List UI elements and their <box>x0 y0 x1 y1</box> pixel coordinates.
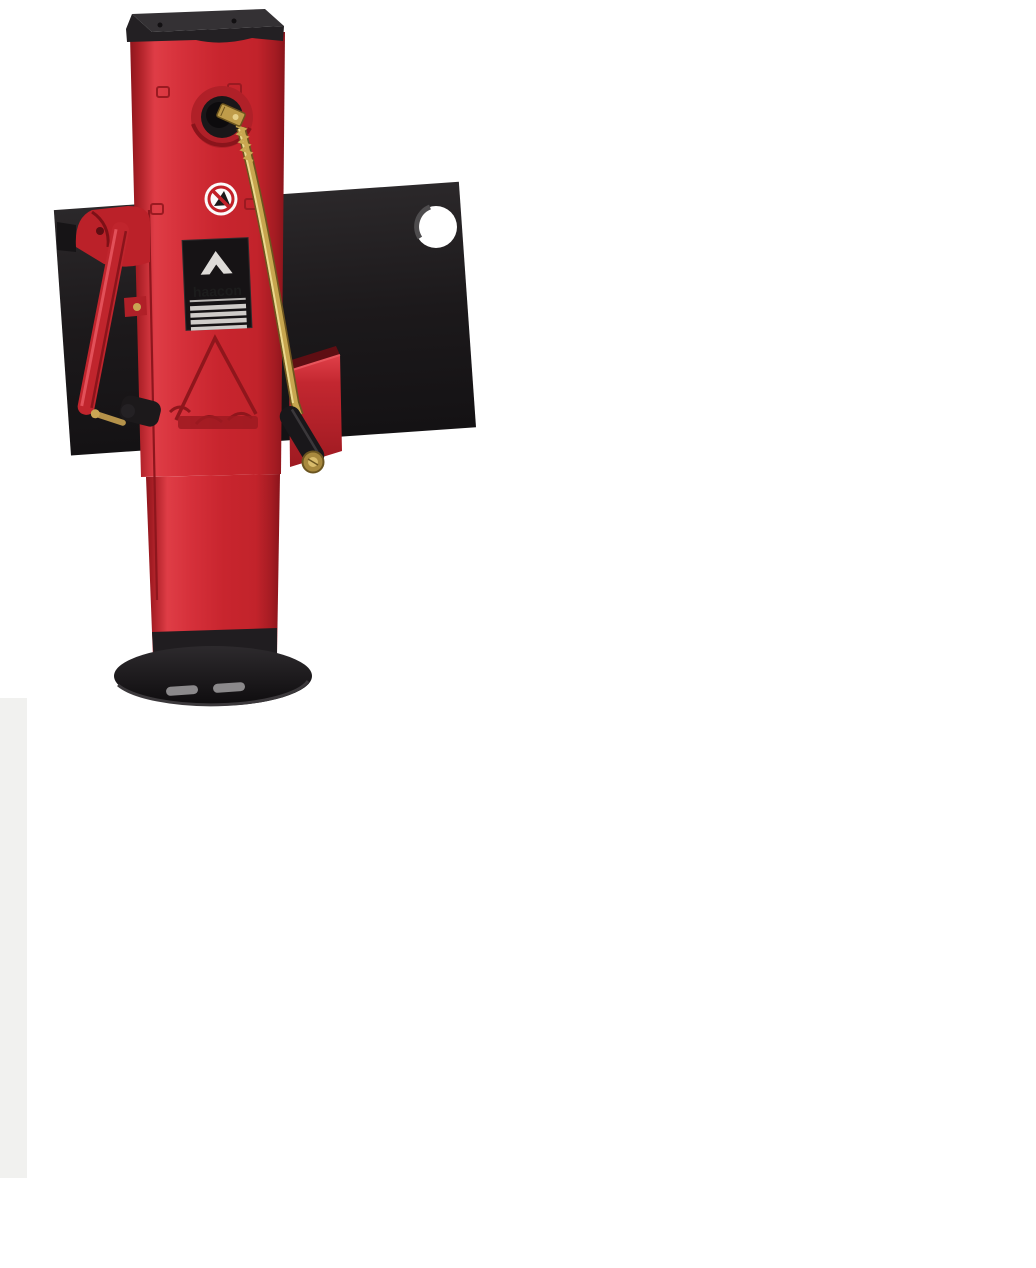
svg-text:haacon: haacon <box>193 282 243 300</box>
